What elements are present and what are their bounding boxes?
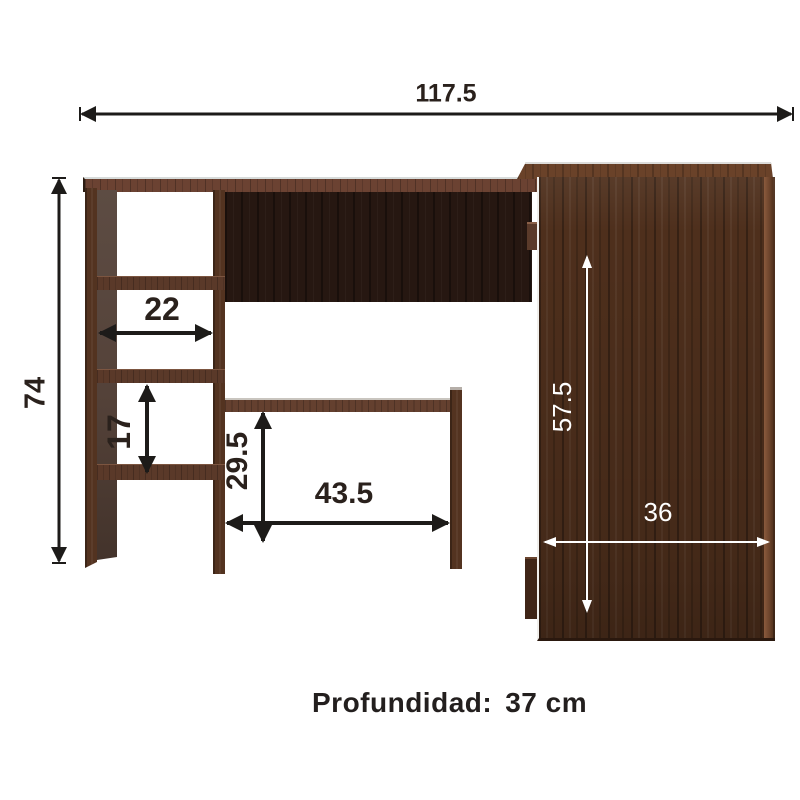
arrow-up-icon [582,255,592,268]
arrow-up-icon [51,178,67,194]
keyboard-tray [225,398,462,412]
dim-shelf-gap-height: 17 [139,384,154,474]
cabinet-right-edge [764,177,773,638]
dim-total-height: 74 [51,178,66,563]
diagram-canvas: 117.5 74 22 17 29.5 43.5 57.5 [0,0,800,800]
shelf-bottom [97,464,225,480]
cabinet-side-tab [525,557,537,619]
dim-line [82,112,791,115]
arrow-right-icon [432,514,450,532]
dim-label: 74 [22,377,51,409]
shelf-middle [97,369,225,383]
shelf-top [97,276,225,290]
dim-cabinet-width: 36 [543,534,770,549]
depth-label: Profundidad: [312,687,492,718]
desk-back-panel [225,189,532,302]
depth-value: 37 cm [505,687,587,718]
desk-top [83,177,537,192]
dim-label: 36 [644,499,673,525]
arrow-down-icon [582,600,592,613]
arrow-left-icon [80,106,96,122]
tray-support-leg [450,387,462,569]
desk-left-panel [85,188,97,568]
arrow-up-icon [138,384,156,402]
dim-shelf-width: 22 [98,325,213,340]
dim-total-width: 117.5 [80,106,793,121]
arrow-right-icon [757,537,770,547]
arrow-up-icon [254,411,272,429]
dim-line [57,180,60,561]
arrow-left-icon [543,537,556,547]
arrow-left-icon [225,514,243,532]
dim-label: 29.5 [223,432,253,490]
dim-label: 57.5 [549,382,575,433]
dim-cabinet-height: 57.5 [579,255,594,613]
depth-caption: Profundidad:37 cm [312,687,587,719]
dim-line [227,521,448,525]
arrow-left-icon [98,324,116,342]
dim-line [586,257,588,611]
dim-tray-width: 43.5 [225,515,450,530]
dim-label: 22 [144,293,180,325]
dim-label: 117.5 [415,82,476,107]
dim-label: 17 [103,414,135,450]
dim-label: 43.5 [315,479,373,509]
arrow-down-icon [138,456,156,474]
arrow-down-icon [51,547,67,563]
arrow-right-icon [777,106,793,122]
dim-line [545,541,768,543]
arrow-right-icon [195,324,213,342]
